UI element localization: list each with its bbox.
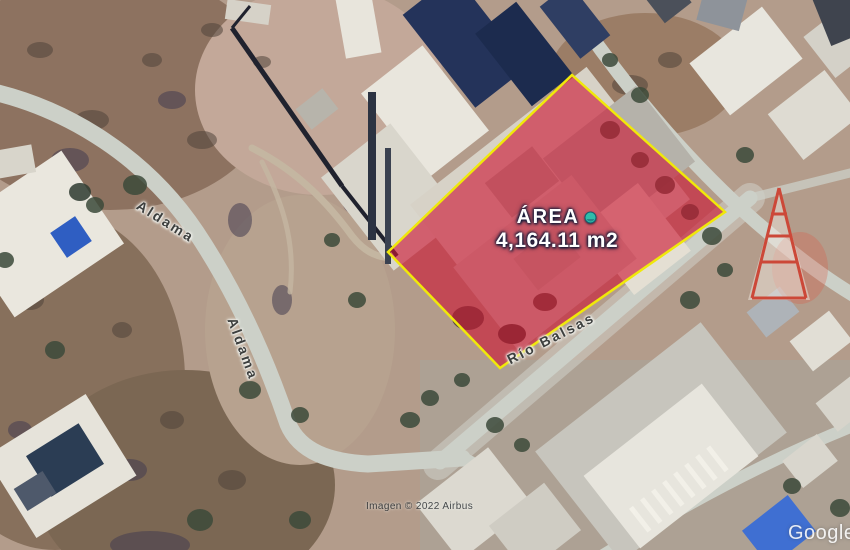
satellite-map[interactable]: ÁREA 4,164.11 m2 Aldama Aldama Río Balsa… [0,0,850,550]
imagery-attribution: Imagen © 2022 Airbus [366,501,473,512]
satellite-imagery [0,0,850,550]
google-watermark: Google [788,522,850,545]
